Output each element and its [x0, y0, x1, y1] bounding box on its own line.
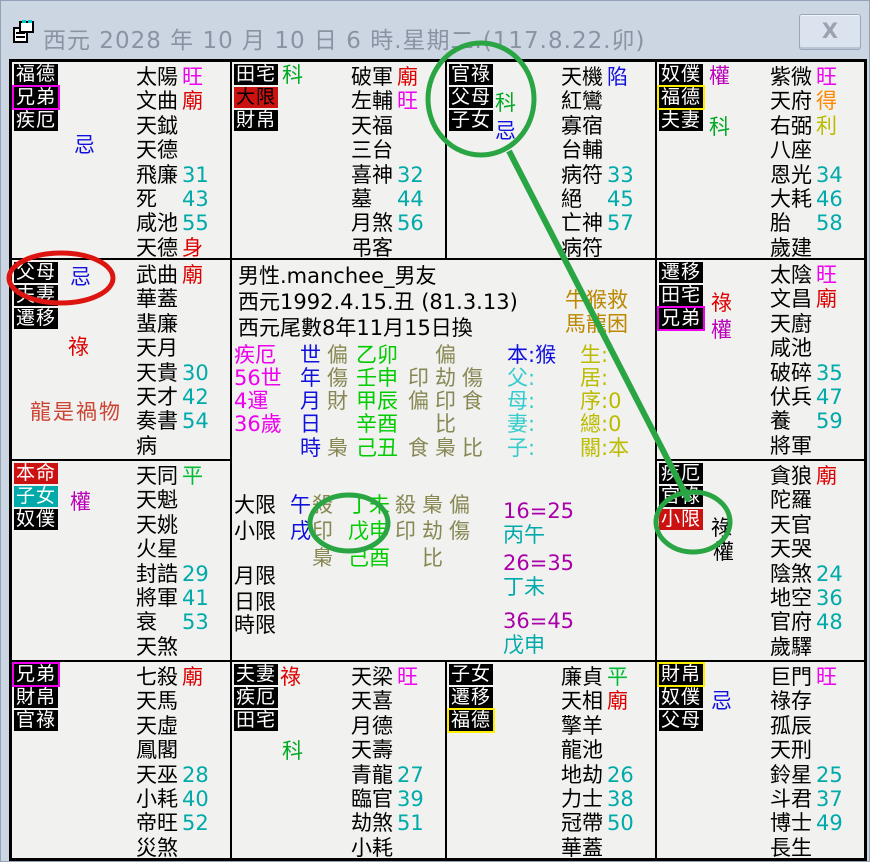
- palace-label: 奴僕: [14, 509, 58, 530]
- star-value: [182, 714, 226, 738]
- star-value: [182, 138, 226, 162]
- star-value: 49: [816, 811, 860, 835]
- palace-labels: 夫妻疾厄田宅: [234, 664, 278, 733]
- palace-chou[interactable]: 夫妻疾厄田宅祿科天梁旺天喜月德天壽青龍27臨官39劫煞51小耗: [231, 661, 446, 859]
- star-row: 鈴星25: [770, 763, 860, 787]
- transform-mark: 科: [709, 116, 730, 138]
- star-value: 30: [182, 361, 226, 385]
- star-row: 長生: [770, 836, 860, 860]
- star-name: 長生: [770, 836, 816, 860]
- center-text: 戊申: [348, 520, 390, 542]
- star-name: 破軍: [351, 65, 397, 89]
- center-text: 年: [300, 367, 321, 389]
- star-row: 天同平: [136, 464, 226, 488]
- star-name: 紅鸞: [561, 89, 607, 113]
- star-list: 太陽旺文曲廟天鉞天德飛廉31死43咸池55天德身: [136, 65, 226, 260]
- center-text: 己丑: [356, 437, 398, 459]
- star-row: 巨門旺: [770, 665, 860, 689]
- star-name: 喜神: [351, 163, 397, 187]
- star-name: 三台: [351, 138, 397, 162]
- transform-mark: 科: [282, 740, 303, 762]
- palace-label: 父母: [14, 262, 58, 283]
- star-name: 廉貞: [561, 665, 607, 689]
- star-value: [182, 537, 226, 561]
- star-name: 太陽: [136, 65, 182, 89]
- star-name: 陰煞: [770, 562, 816, 586]
- palace-labels: 田宅大限財帛: [234, 64, 278, 133]
- star-row: 地劫26: [561, 763, 651, 787]
- star-row: 官府48: [770, 610, 860, 634]
- transform-mark: 權: [709, 65, 730, 87]
- center-text: 父:: [507, 367, 535, 389]
- star-row: 地空36: [770, 586, 860, 610]
- star-value: [607, 89, 651, 113]
- star-name: 冠帶: [561, 811, 607, 835]
- star-list: 天同平天魁天姚火星封誥29將軍41衰53天煞: [136, 464, 226, 659]
- palace-labels: 本命子女奴僕: [14, 463, 58, 532]
- palace-label: 本命: [14, 463, 58, 484]
- star-name: 祿存: [770, 689, 816, 713]
- note-text: 龍是禍物: [30, 396, 122, 426]
- star-value: [182, 738, 226, 762]
- palace-shen[interactable]: 奴僕福德夫妻權科紫微旺天府得右弼利八座恩光34大耗46胎58歲建: [656, 61, 865, 259]
- star-row: 天貴30: [136, 361, 226, 385]
- transform-mark: 科: [282, 64, 303, 86]
- star-row: 太陰旺: [770, 263, 860, 287]
- palace-mao[interactable]: 本命子女奴僕權天同平天魁天姚火星封誥29將軍41衰53天煞: [11, 460, 231, 661]
- star-value: 50: [607, 811, 651, 835]
- star-value: [182, 836, 226, 860]
- yuexian-label: 月限: [234, 565, 276, 587]
- star-name: 右弼: [770, 114, 816, 138]
- star-row: 天官: [770, 513, 860, 537]
- star-value: [397, 114, 441, 138]
- star-name: 天府: [770, 89, 816, 113]
- star-name: 天才: [136, 385, 182, 409]
- star-row: 右弼利: [770, 114, 860, 138]
- star-row: 文昌廟: [770, 287, 860, 311]
- star-value: 25: [816, 763, 860, 787]
- center-text: 食: [408, 437, 429, 459]
- star-value: [182, 513, 226, 537]
- star-list: 太陰旺文昌廟天廚咸池破碎35伏兵47養59將軍: [770, 263, 860, 458]
- star-row: 死43: [136, 187, 226, 211]
- star-value: 36: [816, 586, 860, 610]
- star-value: 廟: [397, 65, 441, 89]
- star-name: 小耗: [136, 787, 182, 811]
- star-value: [607, 738, 651, 762]
- center-text: 世: [300, 344, 321, 366]
- palace-label: 官祿: [659, 486, 703, 507]
- star-row: 天廚: [770, 312, 860, 336]
- star-name: 台輔: [561, 138, 607, 162]
- palace-chen[interactable]: 父母夫妻遷移忌祿龍是禍物武曲廟華蓋蜚廉天月天貴30天才42奏書54病: [11, 259, 231, 460]
- star-name: 力士: [561, 787, 607, 811]
- center-text: 印: [395, 520, 416, 542]
- star-row: 八座: [770, 138, 860, 162]
- star-value: 39: [397, 787, 441, 811]
- palace-labels: 父母夫妻遷移: [14, 262, 58, 331]
- star-name: 亡神: [561, 211, 607, 235]
- star-name: 衰: [136, 610, 182, 634]
- center-text: 梟: [422, 494, 443, 516]
- center-text: 殺: [395, 494, 416, 516]
- age-gz-1: 丙午: [503, 524, 545, 546]
- star-name: 天喜: [351, 689, 397, 713]
- star-value: [397, 714, 441, 738]
- star-name: 臨官: [351, 787, 397, 811]
- rixian-label: 日限: [234, 591, 276, 613]
- palace-labels: 兄弟財帛官祿: [14, 664, 58, 733]
- star-row: 月德: [351, 714, 441, 738]
- star-value: 58: [816, 211, 860, 235]
- star-value: [816, 138, 860, 162]
- star-name: 天官: [770, 513, 816, 537]
- star-value: 24: [816, 562, 860, 586]
- palace-yin[interactable]: 兄弟財帛官祿七殺廟天馬天虛鳳閣天巫28小耗40帝旺52災煞: [11, 661, 231, 859]
- star-row: 天梁旺: [351, 665, 441, 689]
- star-name: 咸池: [136, 211, 182, 235]
- star-row: 天馬: [136, 689, 226, 713]
- star-value: 43: [182, 187, 226, 211]
- star-row: 災煞: [136, 836, 226, 860]
- star-row: 華蓋: [561, 836, 651, 860]
- star-value: 47: [816, 385, 860, 409]
- star-name: 天月: [136, 336, 182, 360]
- star-name: 奏書: [136, 409, 182, 433]
- palace-label: 奴僕: [659, 64, 703, 85]
- star-value: [397, 689, 441, 713]
- star-row: 喜神32: [351, 163, 441, 187]
- star-name: 天魁: [136, 488, 182, 512]
- star-value: 旺: [816, 665, 860, 689]
- transform-mark: 忌: [74, 134, 95, 156]
- star-row: 鳳閣: [136, 738, 226, 762]
- star-name: 青龍: [351, 763, 397, 787]
- star-row: 墓44: [351, 187, 441, 211]
- transform-mark: 權: [711, 319, 732, 341]
- palace-xu[interactable]: 疾厄官祿小限祿權貪狼廟陀羅天官天哭陰煞24地空36官府48歲驛: [656, 460, 865, 661]
- star-name: 災煞: [136, 836, 182, 860]
- age-range-2: 26=35: [503, 552, 574, 574]
- star-name: 天煞: [136, 635, 182, 659]
- star-row: 七殺廟: [136, 665, 226, 689]
- palace-label: 疾厄: [14, 110, 58, 131]
- star-name: 病: [136, 434, 182, 458]
- star-name: 天刑: [770, 738, 816, 762]
- palace-label: 子女: [449, 110, 493, 131]
- center-text: 丁未: [348, 494, 390, 516]
- star-row: 臨官39: [351, 787, 441, 811]
- star-value: 平: [607, 665, 651, 689]
- star-row: 三台: [351, 138, 441, 162]
- star-name: 小耗: [351, 836, 397, 860]
- change-line: 西元尾數8年11月15日換: [238, 317, 473, 339]
- palace-label: 父母: [449, 87, 493, 108]
- person-line: 男性.manchee_男友: [238, 265, 437, 287]
- palace-wei[interactable]: 官祿父母子女科忌天機陷紅鸞寡宿台輔病符33絕45亡神57病符: [446, 61, 656, 259]
- star-row: 天月: [136, 336, 226, 360]
- star-row: 紫微旺: [770, 65, 860, 89]
- star-value: 廟: [607, 689, 651, 713]
- star-row: 紅鸞: [561, 89, 651, 113]
- star-value: 52: [182, 811, 226, 835]
- star-row: 天哭: [770, 537, 860, 561]
- center-text: 食: [462, 390, 483, 412]
- center-text: 日: [300, 413, 321, 435]
- app-icon: [11, 19, 37, 49]
- star-value: 40: [182, 787, 226, 811]
- star-row: 小耗: [351, 836, 441, 860]
- center-text: 梟: [312, 547, 333, 569]
- palace-label: 大限: [234, 87, 278, 108]
- close-button[interactable]: X: [799, 14, 861, 50]
- star-name: 斗君: [770, 787, 816, 811]
- palace-label: 財帛: [234, 110, 278, 131]
- palace-labels: 官祿父母子女: [449, 64, 493, 133]
- center-text: 偏: [435, 344, 456, 366]
- palace-label: 夫妻: [659, 110, 703, 131]
- star-name: 寡宿: [561, 114, 607, 138]
- star-row: 病: [136, 434, 226, 458]
- star-row: 歲驛: [770, 635, 860, 659]
- star-value: [182, 434, 226, 458]
- palace-label: 兄弟: [14, 87, 58, 108]
- star-name: 陀羅: [770, 488, 816, 512]
- transform-mark: 忌: [70, 266, 91, 288]
- palace-label: 夫妻: [234, 664, 278, 685]
- star-row: 恩光34: [770, 163, 860, 187]
- center-text: 56世: [234, 367, 282, 389]
- age-range-1: 16=25: [503, 500, 574, 522]
- star-name: 天同: [136, 464, 182, 488]
- star-value: 廟: [816, 464, 860, 488]
- palace-label: 官祿: [449, 64, 493, 85]
- star-value: 身: [182, 236, 226, 260]
- palace-si[interactable]: 福德兄弟疾厄忌太陽旺文曲廟天鉞天德飛廉31死43咸池55天德身: [11, 61, 231, 259]
- star-row: 太陽旺: [136, 65, 226, 89]
- star-row: 天魁: [136, 488, 226, 512]
- star-name: 墓: [351, 187, 397, 211]
- star-name: 胎: [770, 211, 816, 235]
- star-value: 旺: [397, 665, 441, 689]
- age-gz-3: 戊申: [503, 634, 545, 656]
- star-value: 38: [607, 787, 651, 811]
- palace-label: 父母: [659, 710, 703, 731]
- star-row: 月煞56: [351, 211, 441, 235]
- star-row: 左輔旺: [351, 89, 441, 113]
- star-row: 天德身: [136, 236, 226, 260]
- star-value: 旺: [182, 65, 226, 89]
- star-value: [816, 312, 860, 336]
- star-row: 飛廉31: [136, 163, 226, 187]
- star-value: [182, 312, 226, 336]
- star-value: [607, 138, 651, 162]
- star-name: 擎羊: [561, 714, 607, 738]
- star-row: 伏兵47: [770, 385, 860, 409]
- star-row: 咸池55: [136, 211, 226, 235]
- star-value: [816, 236, 860, 260]
- star-row: 陀羅: [770, 488, 860, 512]
- center-text: 辛酉: [356, 413, 398, 435]
- palace-labels: 財帛奴僕父母: [659, 664, 703, 733]
- star-name: 將軍: [136, 586, 182, 610]
- palace-wu[interactable]: 田宅大限財帛科破軍廟左輔旺天福三台喜神32墓44月煞56弔客: [231, 61, 446, 259]
- star-name: 火星: [136, 537, 182, 561]
- star-row: 龍池: [561, 738, 651, 762]
- title-bar: 西元 2028 年 10 月 10 日 6 時.星期二.(117.8.22.卯)…: [1, 1, 869, 59]
- star-name: 將軍: [770, 434, 816, 458]
- star-name: 帝旺: [136, 811, 182, 835]
- center-panel: 男性.manchee_男友西元1992.4.15.丑 (81.3.13)西元尾數…: [231, 259, 656, 661]
- center-text: 劫: [422, 520, 443, 542]
- star-list: 破軍廟左輔旺天福三台喜神32墓44月煞56弔客: [351, 65, 441, 260]
- star-value: [182, 114, 226, 138]
- palace-label: 兄弟: [659, 308, 703, 329]
- star-row: 大耗46: [770, 187, 860, 211]
- star-value: 旺: [816, 65, 860, 89]
- transform-mark: 忌: [495, 120, 516, 142]
- center-text: 傷: [462, 367, 483, 389]
- palace-label: 疾厄: [234, 687, 278, 708]
- star-name: 劫煞: [351, 811, 397, 835]
- star-row: 天才42: [136, 385, 226, 409]
- star-row: 天煞: [136, 635, 226, 659]
- star-name: 天廚: [770, 312, 816, 336]
- star-row: 病符33: [561, 163, 651, 187]
- star-value: 旺: [397, 89, 441, 113]
- star-row: 胎58: [770, 211, 860, 235]
- star-value: [607, 236, 651, 260]
- star-name: 天壽: [351, 738, 397, 762]
- hint-line-1: 牛猴救: [565, 289, 628, 311]
- star-name: 養: [770, 409, 816, 433]
- star-name: 破碎: [770, 361, 816, 385]
- center-text: 偏: [449, 494, 470, 516]
- center-text: 印: [408, 367, 429, 389]
- star-value: 廟: [816, 287, 860, 311]
- star-row: 天相廟: [561, 689, 651, 713]
- star-row: 衰53: [136, 610, 226, 634]
- palace-label: 子女: [14, 486, 58, 507]
- star-name: 天虛: [136, 714, 182, 738]
- center-text: 疾厄: [234, 344, 276, 366]
- center-text: 偏: [327, 344, 348, 366]
- star-value: [607, 114, 651, 138]
- star-value: [182, 336, 226, 360]
- center-text: 總:0: [580, 413, 621, 435]
- window-title: 西元 2028 年 10 月 10 日 6 時.星期二.(117.8.22.卯): [43, 21, 646, 55]
- star-name: 七殺: [136, 665, 182, 689]
- star-value: 54: [182, 409, 226, 433]
- center-text: 財: [327, 390, 348, 412]
- center-text: 乙卯: [356, 344, 398, 366]
- star-name: 天相: [561, 689, 607, 713]
- star-row: 冠帶50: [561, 811, 651, 835]
- palace-hai[interactable]: 財帛奴僕父母忌巨門旺祿存孤辰天刑鈴星25斗君37博士49長生: [656, 661, 865, 859]
- star-name: 月德: [351, 714, 397, 738]
- star-name: 天機: [561, 65, 607, 89]
- star-value: 53: [182, 610, 226, 634]
- star-value: [816, 513, 860, 537]
- star-row: 天刑: [770, 738, 860, 762]
- star-name: 鈴星: [770, 763, 816, 787]
- palace-label: 田宅: [234, 64, 278, 85]
- palace-labels: 子女遷移福德: [449, 664, 493, 733]
- star-row: 火星: [136, 537, 226, 561]
- star-name: 伏兵: [770, 385, 816, 409]
- star-value: 得: [816, 89, 860, 113]
- center-text: 殺: [312, 494, 333, 516]
- palace-label: 奴僕: [659, 687, 703, 708]
- star-value: [816, 836, 860, 860]
- star-name: 太陰: [770, 263, 816, 287]
- center-text: 甲辰: [356, 390, 398, 412]
- center-text: 印: [312, 520, 333, 542]
- star-name: 天鉞: [136, 114, 182, 138]
- center-text: 母:: [507, 390, 535, 412]
- star-list: 廉貞平天相廟擎羊龍池地劫26力士38冠帶50華蓋: [561, 665, 651, 860]
- star-value: 42: [182, 385, 226, 409]
- star-name: 龍池: [561, 738, 607, 762]
- star-name: 病符: [561, 163, 607, 187]
- center-text: 壬申: [356, 367, 398, 389]
- star-row: 天德: [136, 138, 226, 162]
- palace-label: 子女: [449, 664, 493, 685]
- star-list: 七殺廟天馬天虛鳳閣天巫28小耗40帝旺52災煞: [136, 665, 226, 860]
- star-value: 28: [182, 763, 226, 787]
- star-name: 天巫: [136, 763, 182, 787]
- star-list: 貪狼廟陀羅天官天哭陰煞24地空36官府48歲驛: [770, 464, 860, 659]
- palace-zi[interactable]: 子女遷移福德廉貞平天相廟擎羊龍池地劫26力士38冠帶50華蓋: [446, 661, 656, 859]
- star-value: [816, 537, 860, 561]
- center-text: 傷: [327, 367, 348, 389]
- star-row: 歲建: [770, 236, 860, 260]
- center-text: 印: [435, 390, 456, 412]
- star-name: 天貴: [136, 361, 182, 385]
- transform-mark: 權: [713, 541, 734, 563]
- palace-label: 田宅: [234, 710, 278, 731]
- star-value: [816, 714, 860, 738]
- palace-label: 兄弟: [14, 664, 58, 685]
- palace-label: 財帛: [14, 687, 58, 708]
- star-row: 廉貞平: [561, 665, 651, 689]
- star-name: 博士: [770, 811, 816, 835]
- palace-labels: 疾厄官祿小限: [659, 463, 703, 532]
- palace-label: 官祿: [14, 710, 58, 731]
- palace-you[interactable]: 遷移田宅兄弟祿權太陰旺文昌廟天廚咸池破碎35伏兵47養59將軍: [656, 259, 865, 460]
- star-value: 廟: [182, 89, 226, 113]
- star-value: 55: [182, 211, 226, 235]
- star-value: 41: [182, 586, 226, 610]
- star-value: [816, 336, 860, 360]
- star-value: 46: [816, 187, 860, 211]
- board: 男性.manchee_男友西元1992.4.15.丑 (81.3.13)西元尾數…: [9, 59, 867, 861]
- star-name: 華蓋: [561, 836, 607, 860]
- star-name: 飛廉: [136, 163, 182, 187]
- center-text: 偏: [408, 390, 429, 412]
- transform-mark: 忌: [711, 690, 732, 712]
- star-value: [397, 738, 441, 762]
- star-name: 地劫: [561, 763, 607, 787]
- palace-label: 田宅: [659, 285, 703, 306]
- center-text: 比: [435, 413, 456, 435]
- star-row: 天巫28: [136, 763, 226, 787]
- star-name: 貪狼: [770, 464, 816, 488]
- palace-labels: 遷移田宅兄弟: [659, 262, 703, 331]
- center-text: 梟: [327, 437, 348, 459]
- star-row: 寡宿: [561, 114, 651, 138]
